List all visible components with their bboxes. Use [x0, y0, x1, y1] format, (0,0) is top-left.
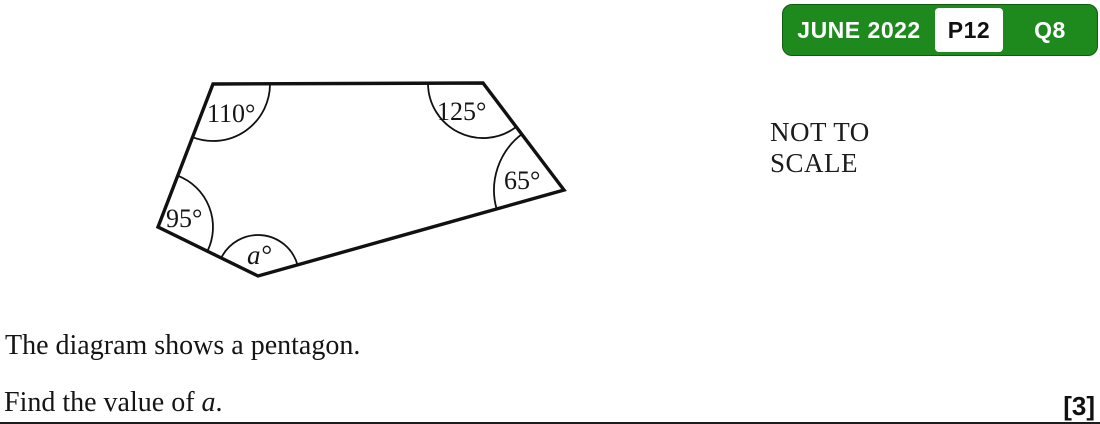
pentagon-diagram: 110° 125° 65° 95° a° — [0, 0, 620, 310]
exam-question-page: 110° 125° 65° 95° a° JUNE 2022 P12 Q8 NO… — [0, 0, 1100, 424]
badge-session: JUNE 2022 — [783, 17, 935, 44]
badge-question: Q8 — [1003, 17, 1097, 44]
not-to-scale-note: NOT TO SCALE — [770, 117, 870, 179]
not-to-scale-line2: SCALE — [770, 148, 870, 179]
question-prompt-prefix: Find the value of — [4, 387, 202, 418]
exam-badge: JUNE 2022 P12 Q8 — [782, 4, 1098, 56]
angle-label-right: 65° — [504, 166, 540, 195]
question-statement: The diagram shows a pentagon. — [5, 330, 360, 362]
badge-paper: P12 — [935, 8, 1003, 52]
angle-label-bottom: a° — [247, 240, 272, 270]
marks-badge: [3] — [1063, 391, 1095, 422]
not-to-scale-line1: NOT TO — [770, 117, 870, 148]
question-prompt-suffix: . — [216, 387, 223, 418]
angle-label-left: 95° — [166, 204, 202, 233]
question-prompt: Find the value of a. — [4, 387, 223, 419]
question-variable: a — [202, 387, 216, 418]
angle-label-top-right: 125° — [437, 97, 486, 126]
angle-label-top-left: 110° — [207, 99, 255, 128]
